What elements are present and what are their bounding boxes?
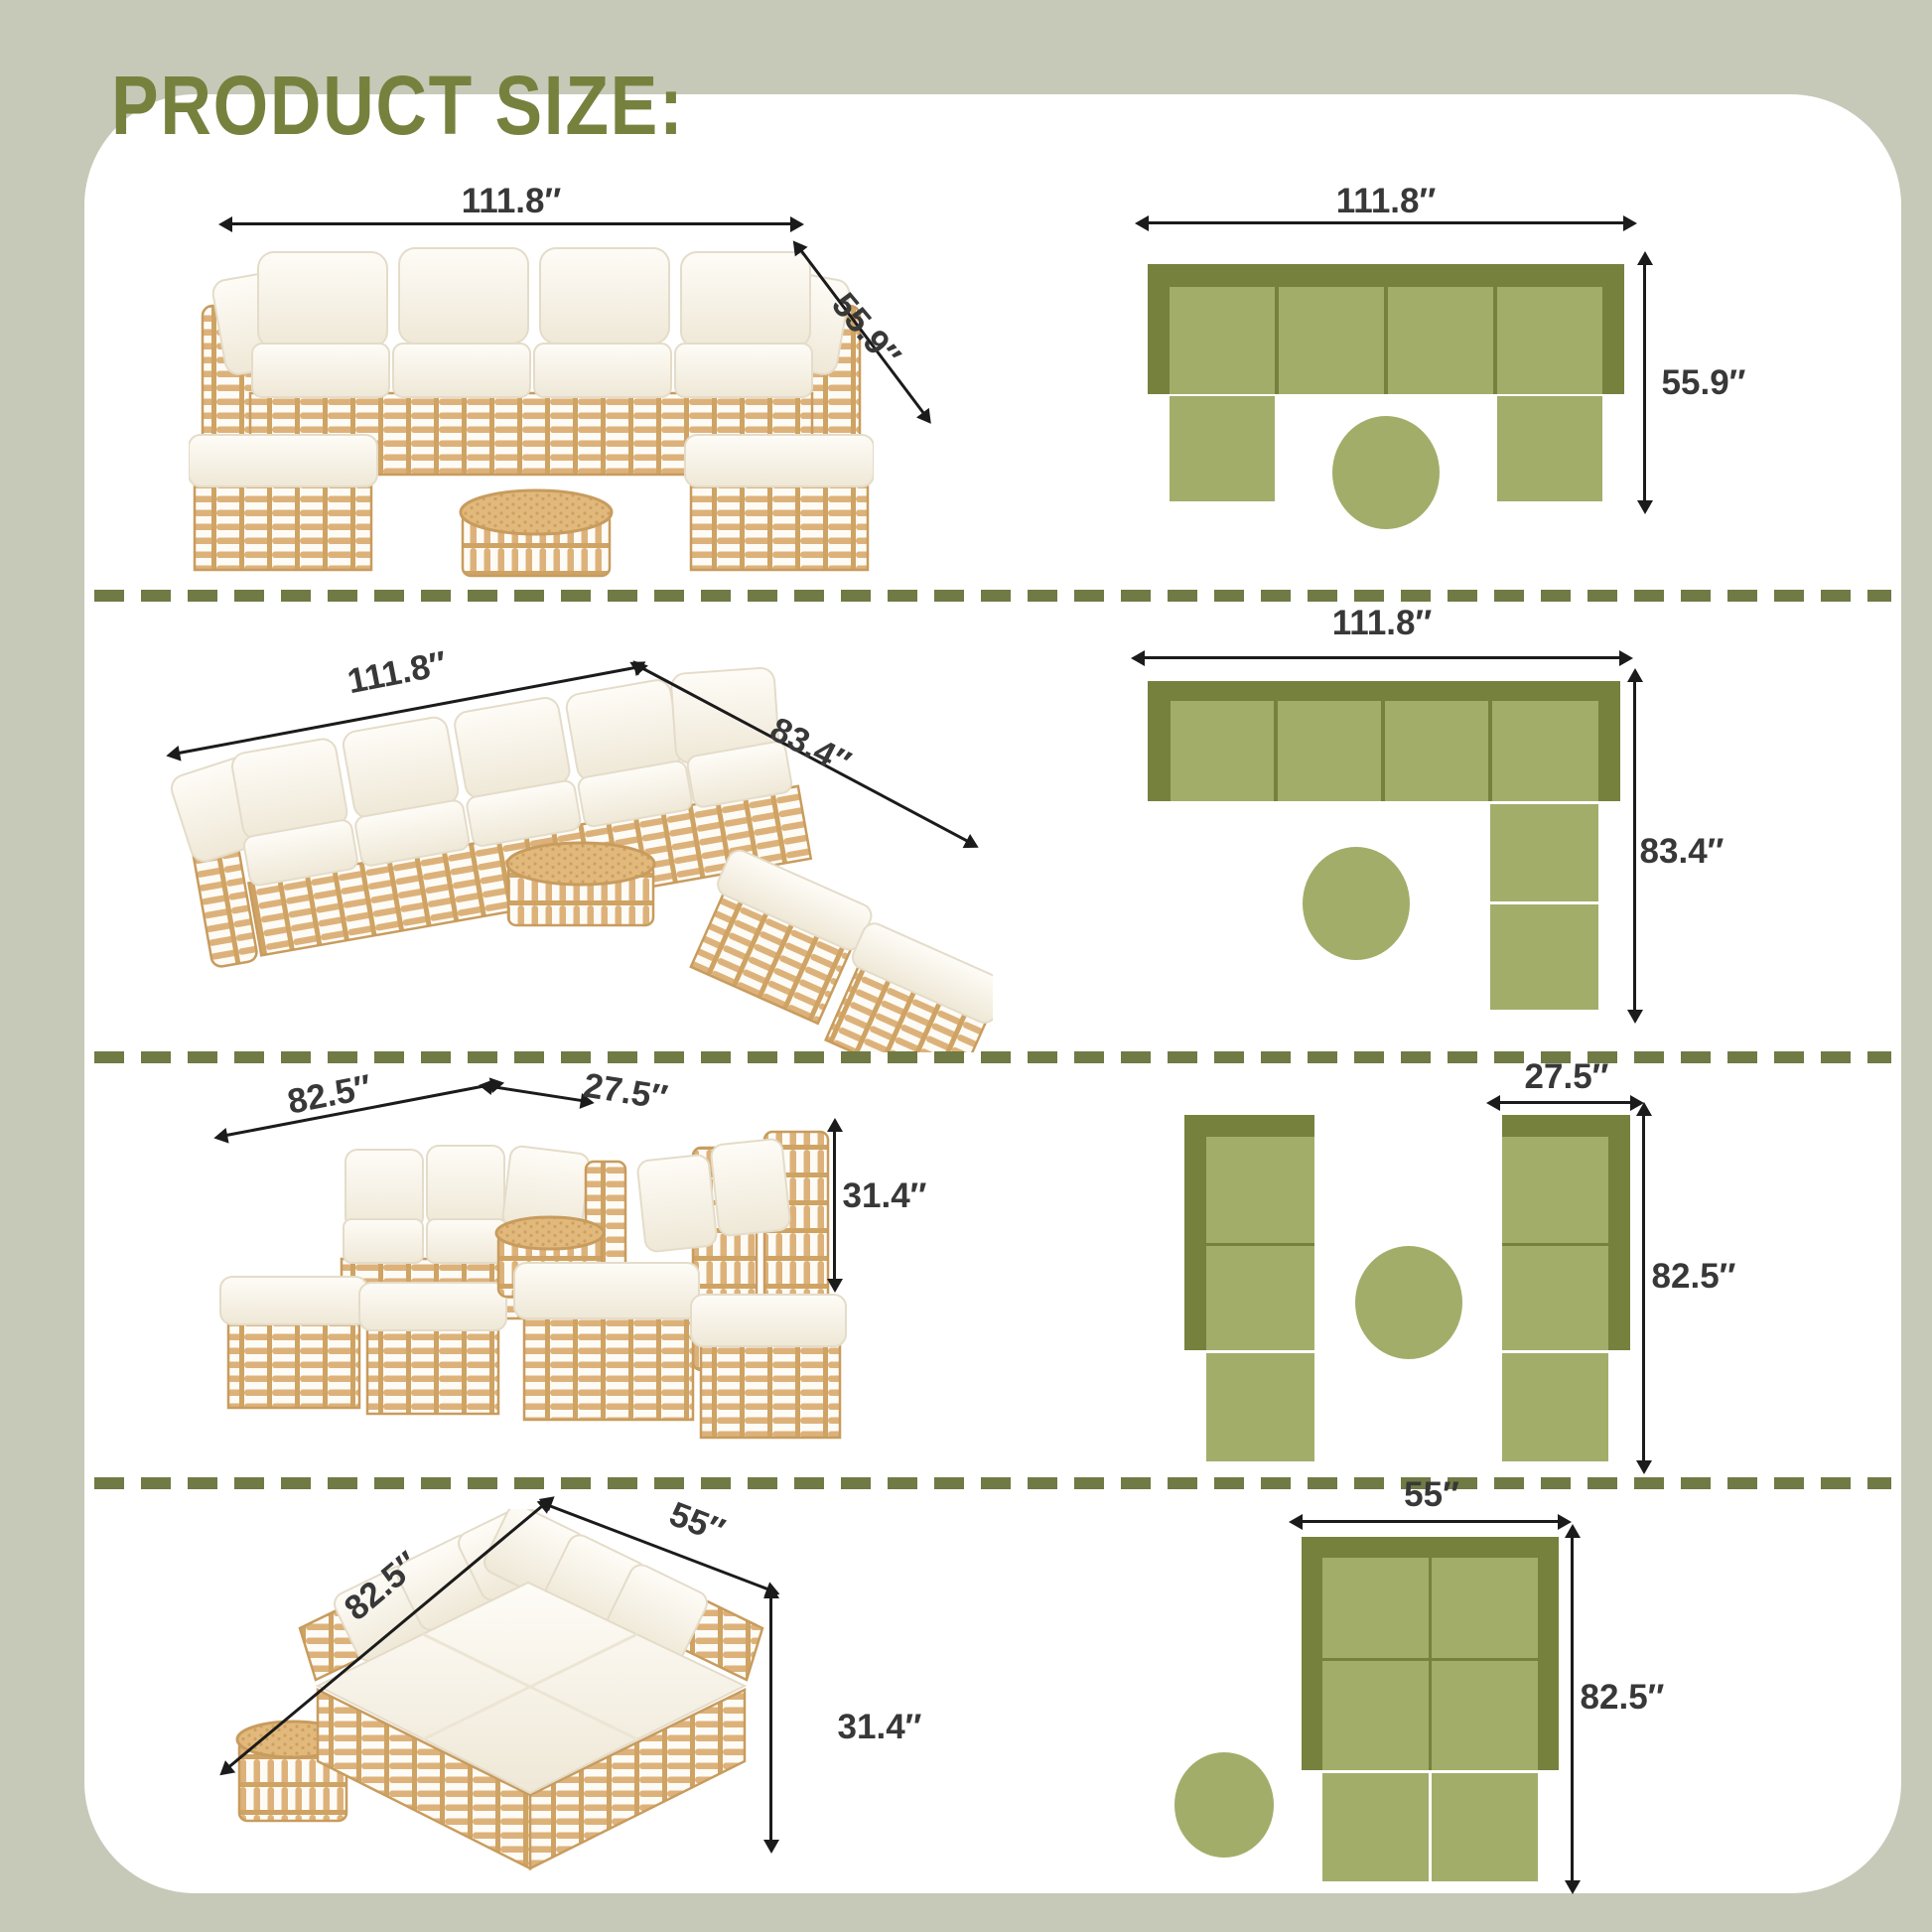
seat-cell bbox=[1492, 701, 1598, 801]
ottoman-cell bbox=[1490, 904, 1598, 1010]
dimension-arrow bbox=[1302, 1520, 1559, 1523]
furniture-photo-u-shape bbox=[189, 242, 874, 584]
dimension-arrow bbox=[769, 1597, 772, 1841]
dimension-label: 31.4″ bbox=[838, 1708, 922, 1747]
dimension-arrow bbox=[231, 222, 791, 225]
seat-cell bbox=[1278, 701, 1381, 801]
dimension-label: 111.8″ bbox=[1332, 604, 1433, 643]
seat-cell bbox=[1388, 287, 1493, 394]
seat-cell bbox=[1279, 287, 1384, 394]
seat-cell bbox=[1206, 1246, 1314, 1350]
dimension-label: 82.5″ bbox=[1581, 1678, 1665, 1718]
table-circle bbox=[1174, 1752, 1274, 1858]
dimension-label: 27.5″ bbox=[1525, 1057, 1609, 1097]
table-circle bbox=[1332, 416, 1440, 529]
seat-cell bbox=[1490, 804, 1598, 901]
dimension-arrow bbox=[1144, 656, 1620, 659]
product-size-infographic: PRODUCT SIZE: bbox=[0, 0, 1932, 1932]
dimension-label: 111.8″ bbox=[462, 182, 562, 221]
seat-cell bbox=[1502, 1137, 1608, 1243]
dimension-label: 83.4″ bbox=[1640, 832, 1725, 872]
ottoman-cell bbox=[1322, 1773, 1429, 1881]
dashed-divider bbox=[94, 590, 1891, 602]
seat-cell bbox=[1432, 1661, 1538, 1770]
ottoman-cell bbox=[1432, 1773, 1538, 1881]
dashed-divider bbox=[94, 1051, 1891, 1063]
dimension-arrow bbox=[1643, 264, 1646, 501]
seat-cell bbox=[1206, 1137, 1314, 1243]
dimension-arrow bbox=[1633, 681, 1636, 1011]
dimension-arrow bbox=[833, 1131, 836, 1280]
dimension-arrow bbox=[1499, 1101, 1631, 1104]
furniture-photo-l-shape bbox=[139, 655, 993, 1052]
dimension-label: 55″ bbox=[1404, 1475, 1459, 1515]
dimension-arrow bbox=[1642, 1115, 1645, 1461]
seat-cell bbox=[1385, 701, 1488, 801]
dashed-divider bbox=[94, 1477, 1891, 1489]
ottoman-cell bbox=[1206, 1353, 1314, 1461]
ottoman-cell bbox=[1502, 1353, 1608, 1461]
ottoman-cell bbox=[1497, 396, 1602, 501]
page-title: PRODUCT SIZE: bbox=[111, 58, 684, 154]
seat-cell bbox=[1171, 701, 1274, 801]
dimension-arrow bbox=[1571, 1537, 1574, 1881]
ottoman-cell bbox=[1170, 396, 1275, 501]
dimension-label: 111.8″ bbox=[1336, 182, 1437, 221]
table-circle bbox=[1303, 847, 1410, 960]
table-circle bbox=[1355, 1246, 1462, 1359]
dimension-label: 82.5″ bbox=[1652, 1257, 1736, 1297]
dimension-label: 55.9″ bbox=[1662, 363, 1746, 403]
dimension-arrow bbox=[1148, 221, 1624, 224]
seat-cell bbox=[1322, 1661, 1429, 1770]
dimension-label: 31.4″ bbox=[843, 1176, 927, 1216]
furniture-photo-facing-sofas bbox=[189, 1122, 864, 1469]
seat-cell bbox=[1502, 1246, 1608, 1350]
seat-cell bbox=[1170, 287, 1275, 394]
seat-cell bbox=[1432, 1558, 1538, 1658]
seat-cell bbox=[1322, 1558, 1429, 1658]
seat-cell bbox=[1497, 287, 1602, 394]
